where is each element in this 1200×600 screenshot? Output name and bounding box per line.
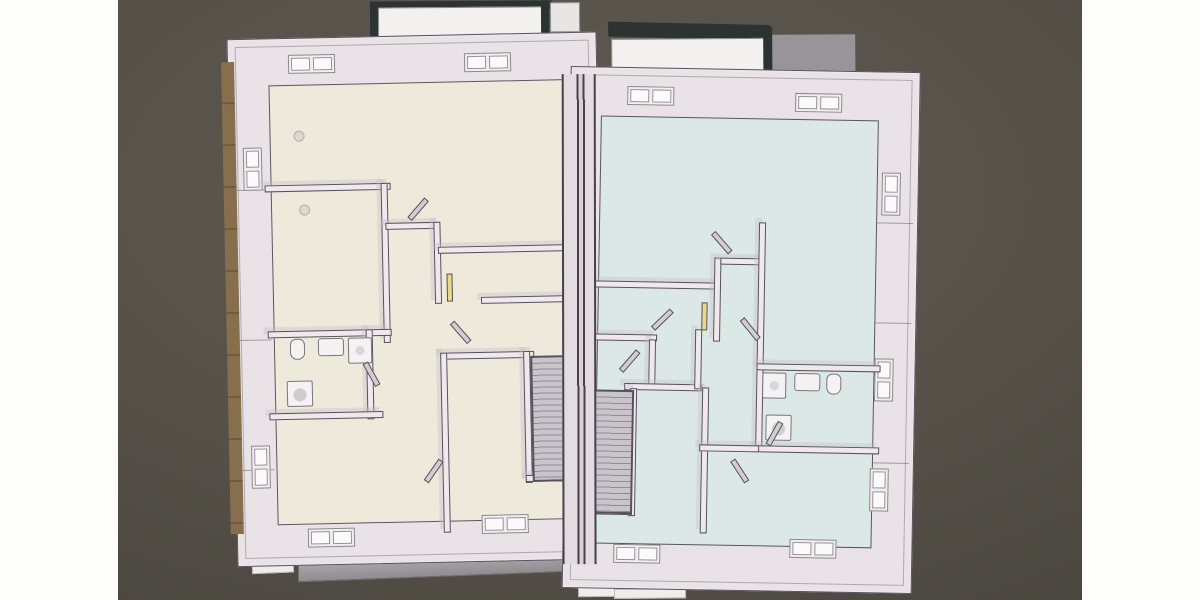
window-pair [308, 528, 355, 548]
window-pair [243, 147, 263, 190]
shower-fixture [762, 372, 786, 398]
interior-wall [694, 329, 702, 389]
masonry-joint [873, 462, 909, 464]
masonry-joint [875, 322, 911, 324]
window-pair [613, 544, 660, 564]
interior-wall [699, 444, 759, 452]
window-pair [789, 539, 836, 559]
sink-fixture [318, 338, 344, 357]
window-pair [869, 468, 889, 511]
toilet-fixture [290, 339, 305, 360]
screenshot-canvas [0, 0, 1200, 600]
masonry-joint [877, 222, 913, 224]
left-dormer-side [370, 2, 378, 40]
window-pair [482, 514, 529, 534]
door-leaf-yellow [701, 302, 707, 330]
left-exterior-brown-trim [221, 62, 244, 534]
photo-of-screen [118, 0, 1082, 600]
window-pair [288, 54, 335, 74]
sink-fixture [794, 373, 820, 391]
door-leaf-yellow [446, 274, 453, 302]
cad-model-view [118, 0, 1082, 600]
left-dormer-return [550, 2, 580, 32]
window-pair [881, 172, 901, 215]
window-pair [251, 445, 271, 488]
right-facade-step [614, 588, 686, 599]
right-unit-floor [593, 116, 878, 549]
shower-fixture [348, 337, 373, 363]
interior-wall [713, 258, 721, 342]
floorplan-left-unit [227, 31, 608, 567]
interior-wall [385, 222, 439, 230]
interior-wall [648, 339, 656, 389]
washer-fixture [287, 380, 314, 407]
party-wall [562, 74, 597, 564]
floorplan-right-unit [562, 66, 921, 594]
interior-wall [591, 333, 657, 341]
window-pair [795, 93, 842, 113]
window-pair [464, 52, 511, 72]
masonry-joint [240, 339, 272, 341]
toilet-fixture [826, 374, 841, 395]
window-pair [627, 86, 674, 106]
